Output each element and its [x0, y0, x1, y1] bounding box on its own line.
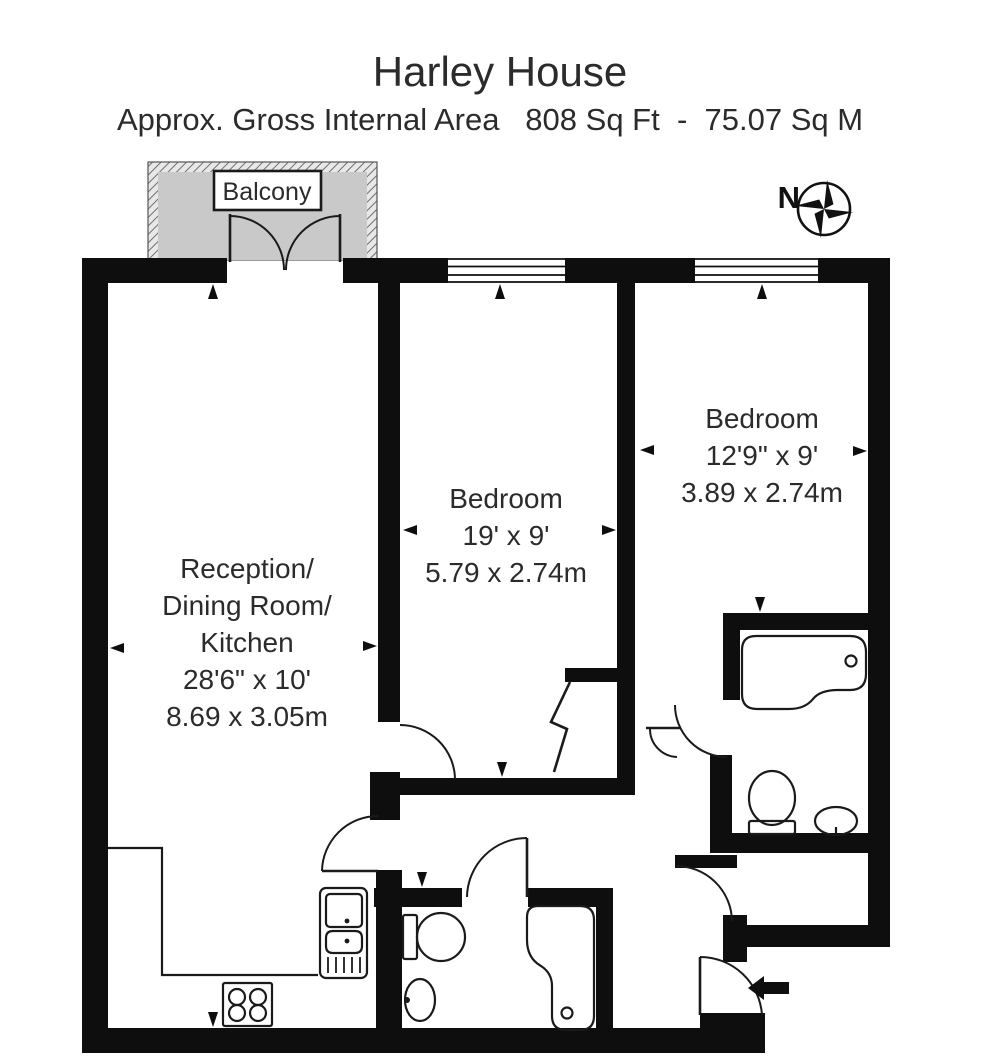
sink-unit-icon	[320, 888, 367, 978]
washbasin-icon-bottom-bathroom	[404, 979, 435, 1021]
door-bathroom-bottom	[467, 838, 527, 897]
room-label-reception: Reception/ Dining Room/ Kitchen 28'6" x …	[162, 553, 332, 732]
window-bedroom-middle	[448, 257, 565, 284]
toilet-icon-bottom-bathroom	[403, 913, 465, 961]
washbasin-icon-right-bathroom	[815, 807, 857, 835]
door-bathroom-right	[646, 705, 727, 757]
svg-text:8.69 x 3.05m: 8.69 x 3.05m	[166, 701, 328, 732]
svg-text:28'6" x 10': 28'6" x 10'	[183, 664, 311, 695]
bathtub-icon-bottom-bathroom	[527, 906, 594, 1030]
bath-drain-bottom	[562, 1008, 573, 1019]
balcony-label: Balcony	[223, 178, 312, 206]
svg-text:5.79 x 2.74m: 5.79 x 2.74m	[425, 557, 587, 588]
svg-text:Kitchen: Kitchen	[200, 627, 293, 658]
wardrobe-zigzag	[551, 682, 570, 772]
door-bedroom-middle	[400, 725, 455, 779]
entry-arrow	[748, 976, 789, 1000]
svg-text:19' x 9': 19' x 9'	[463, 520, 550, 551]
svg-text:Bedroom: Bedroom	[705, 403, 819, 434]
svg-text:12'9" x 9': 12'9" x 9'	[706, 440, 818, 471]
floorplan-page: Harley House Approx. Gross Internal Area…	[0, 0, 1005, 1060]
window-bedroom-right	[695, 257, 818, 284]
bathtub-icon-right-bathroom	[742, 636, 866, 709]
svg-text:Reception/: Reception/	[180, 553, 314, 584]
door-hall-cupboard	[676, 866, 732, 921]
page-subtitle: Approx. Gross Internal Area 808 Sq Ft - …	[117, 102, 863, 137]
room-label-bedroom-right: Bedroom 12'9" x 9' 3.89 x 2.74m	[681, 403, 843, 508]
north-compass-icon: N	[778, 173, 861, 246]
page-title: Harley House	[373, 48, 627, 95]
north-label: N	[778, 180, 800, 215]
toilet-icon-right-bathroom	[749, 771, 795, 834]
kitchen-counter	[108, 848, 318, 975]
room-label-bedroom-middle: Bedroom 19' x 9' 5.79 x 2.74m	[425, 483, 587, 588]
hob-icon	[223, 983, 272, 1026]
bath-drain-right	[846, 656, 857, 667]
svg-text:Dining Room/: Dining Room/	[162, 590, 332, 621]
svg-text:Bedroom: Bedroom	[449, 483, 563, 514]
svg-text:3.89 x 2.74m: 3.89 x 2.74m	[681, 477, 843, 508]
door-reception	[322, 816, 378, 871]
balcony: Balcony	[148, 162, 377, 260]
floorplan-canvas: Harley House Approx. Gross Internal Area…	[0, 0, 1005, 1060]
entrance-door	[700, 957, 789, 1015]
